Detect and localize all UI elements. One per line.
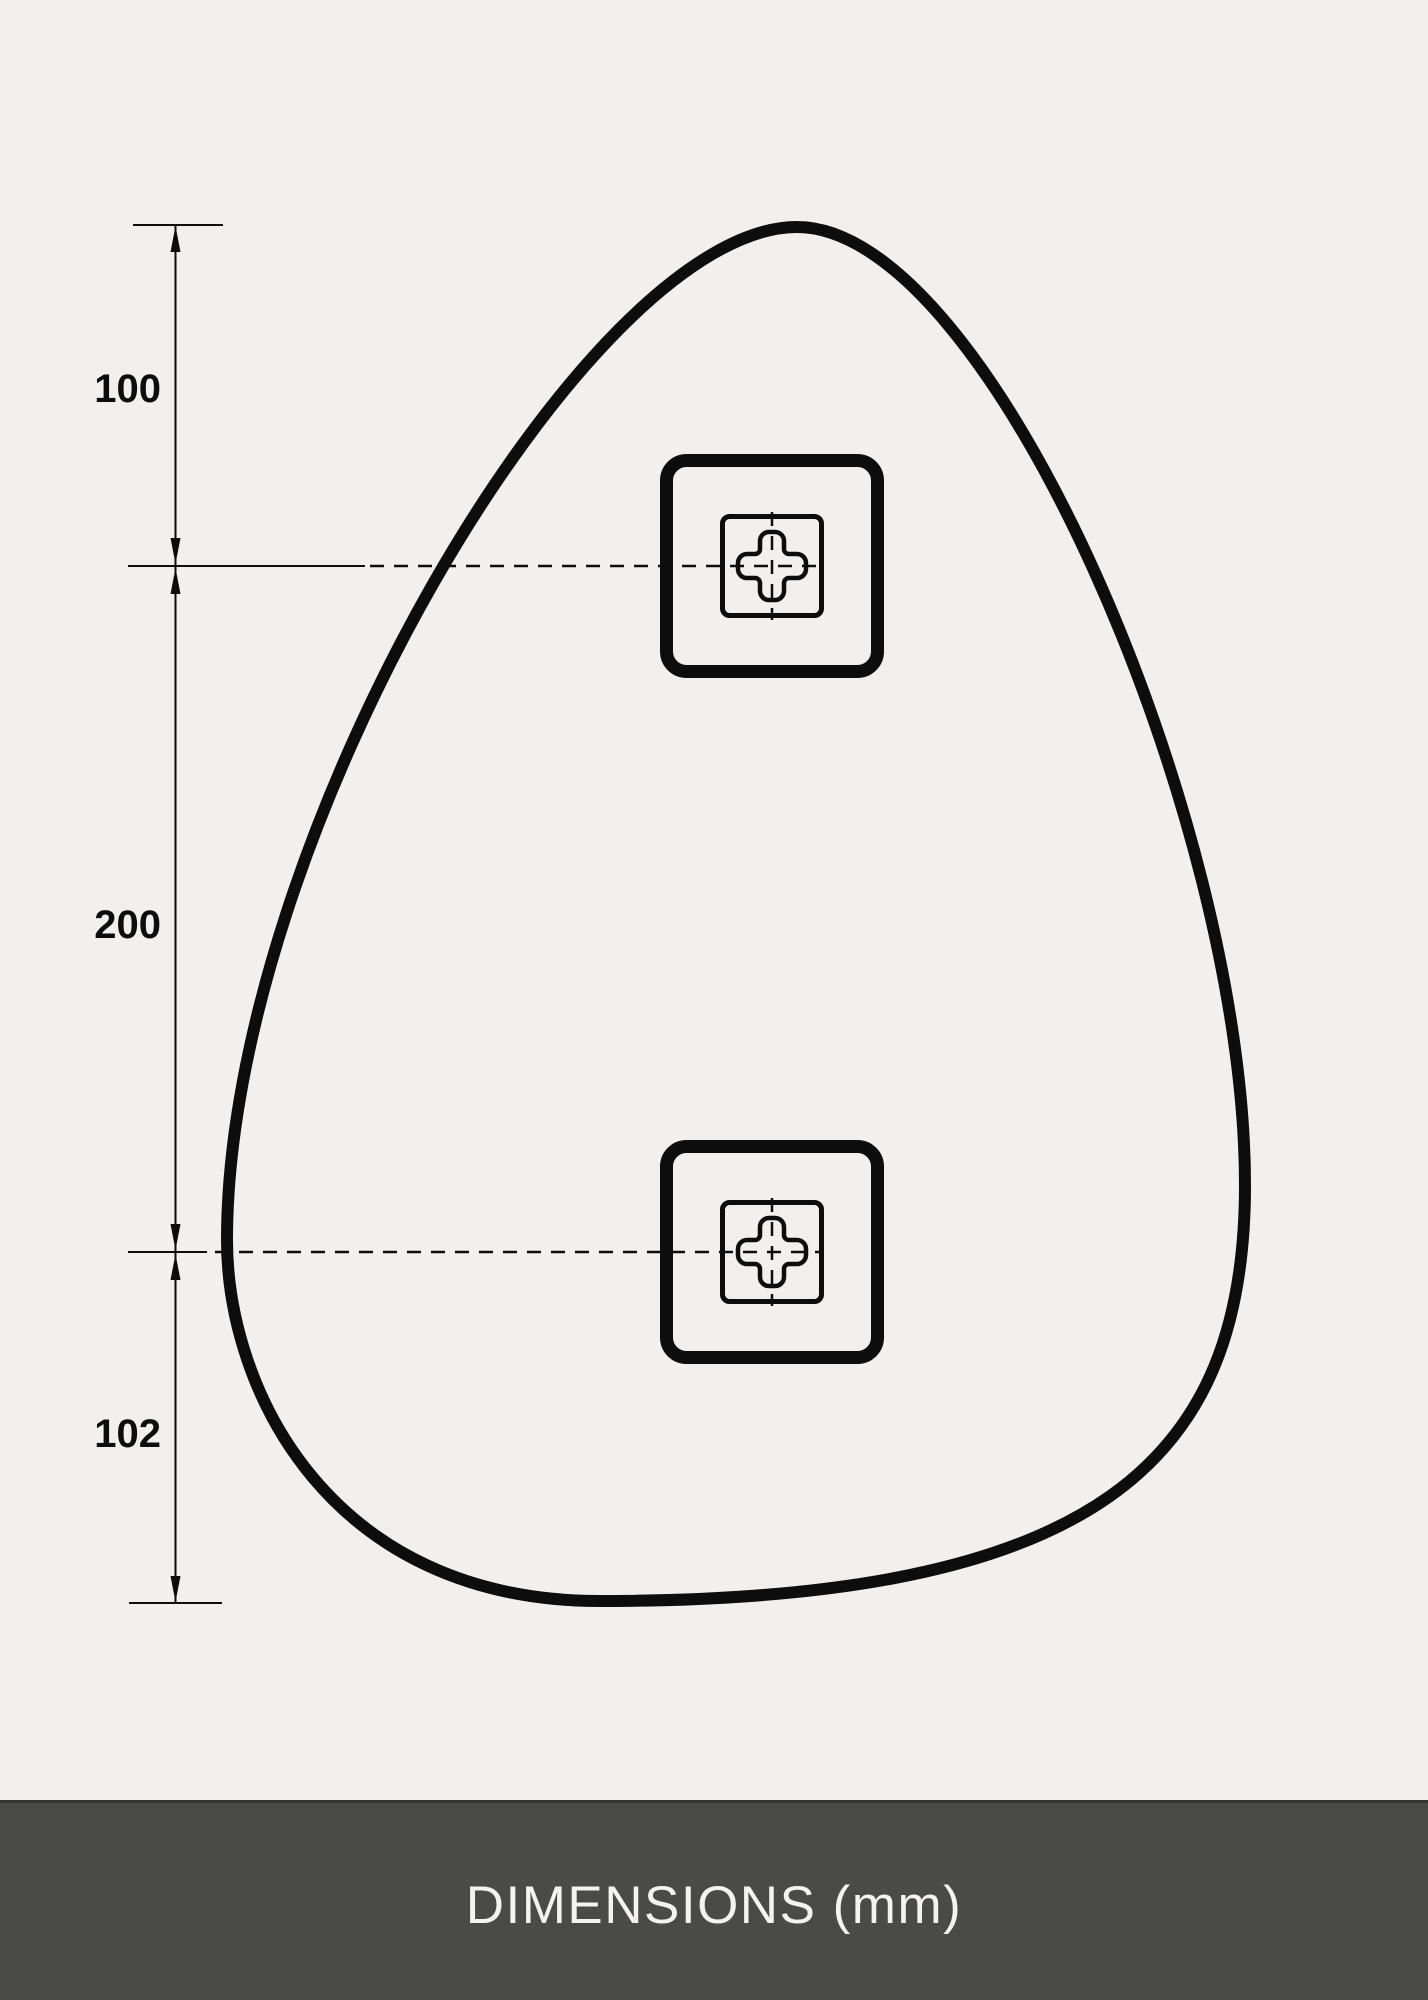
dimension-assembly: 100 200 102 — [94, 225, 365, 1603]
footer-caption: DIMENSIONS (mm) — [466, 1875, 963, 1936]
dimension-label-100: 100 — [94, 367, 161, 411]
dimension-arrow-up — [171, 226, 181, 252]
dimension-arrow-up — [171, 1254, 181, 1280]
dimension-arrow-down — [171, 1576, 181, 1602]
dimension-arrow-down — [171, 538, 181, 564]
mirror-outline — [227, 227, 1245, 1601]
dimension-diagram: 100 200 102 — [0, 0, 1428, 2000]
dimension-arrow-up — [171, 568, 181, 594]
dimension-label-102: 102 — [94, 1412, 161, 1456]
centerline-group — [215, 512, 820, 1306]
drawing-page: 100 200 102 DIMENSIONS (mm) — [0, 0, 1428, 2000]
dimension-label-200: 200 — [94, 903, 161, 947]
footer-bar: DIMENSIONS (mm) — [0, 1800, 1428, 2000]
dimension-arrow-down — [171, 1224, 181, 1250]
